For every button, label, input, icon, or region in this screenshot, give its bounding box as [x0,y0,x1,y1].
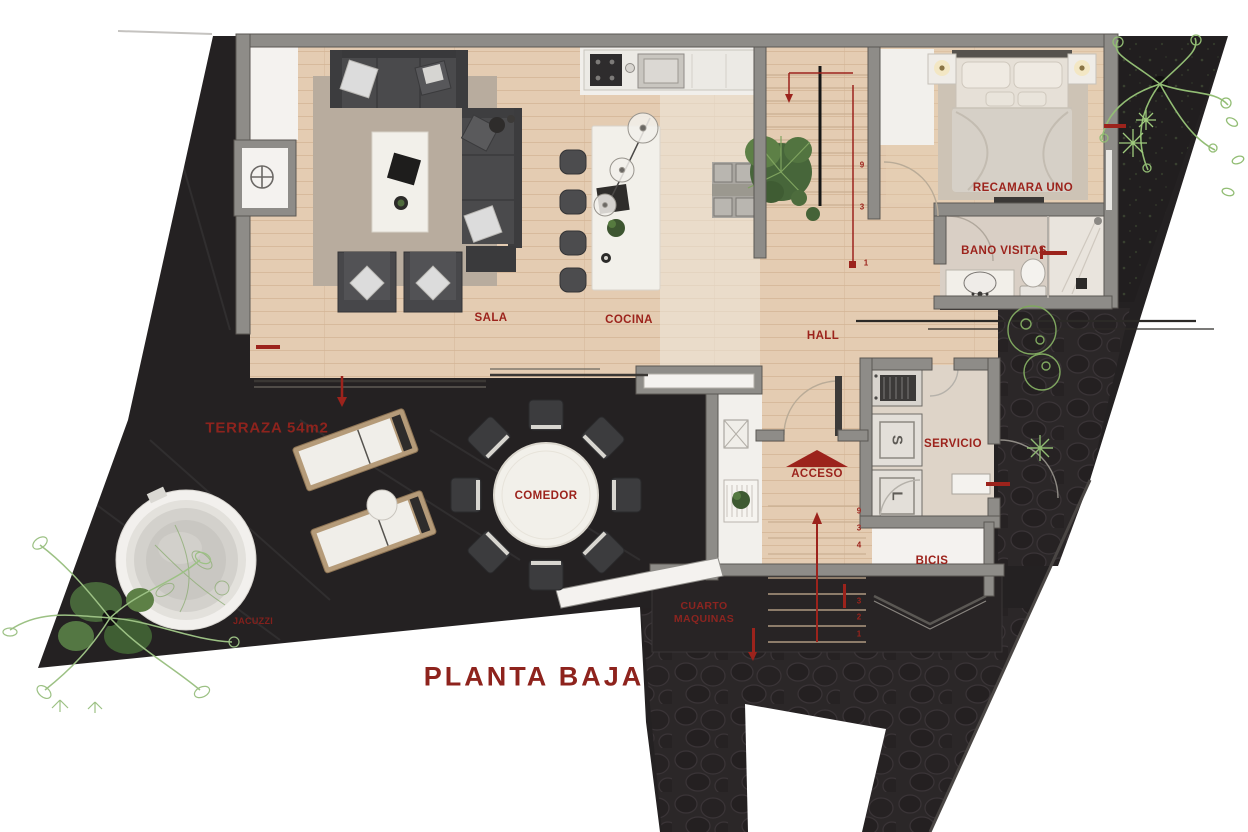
bedroom [928,50,1096,205]
floor-plan: SALA COCINA HALL RECAMARA UNO BANO VISIT… [0,0,1248,832]
dining-table [494,443,598,547]
ottoman [466,246,516,272]
sofa [330,50,468,108]
laundry-sink [952,474,990,494]
sala-furniture [313,50,522,312]
closet-strip [880,49,934,145]
bedroom-window [1106,150,1112,210]
window-sill-left [250,47,298,140]
floor-corridor [876,205,940,310]
dining-set [451,400,641,590]
cooktop [590,54,622,86]
entry-door-leaf [835,376,842,436]
floor-cuarto-maquinas [652,572,1002,652]
chaise [462,108,522,272]
washer [872,470,922,522]
armchair [404,252,462,312]
coffee-table [372,132,428,232]
toilet [1020,259,1046,297]
bed [952,50,1072,192]
boiler [872,370,922,406]
window-sill [644,374,754,388]
nightstand [1068,54,1096,84]
terrace-fixture [234,140,296,216]
vanity [946,270,1014,298]
nightstand [928,54,956,84]
side-table-round [367,490,397,520]
floor-plan-drawing [0,0,1248,832]
floor-grates [712,162,756,218]
armchair [338,252,396,312]
dryer [872,414,922,466]
console-shelf [724,480,758,522]
side-table [489,117,505,133]
